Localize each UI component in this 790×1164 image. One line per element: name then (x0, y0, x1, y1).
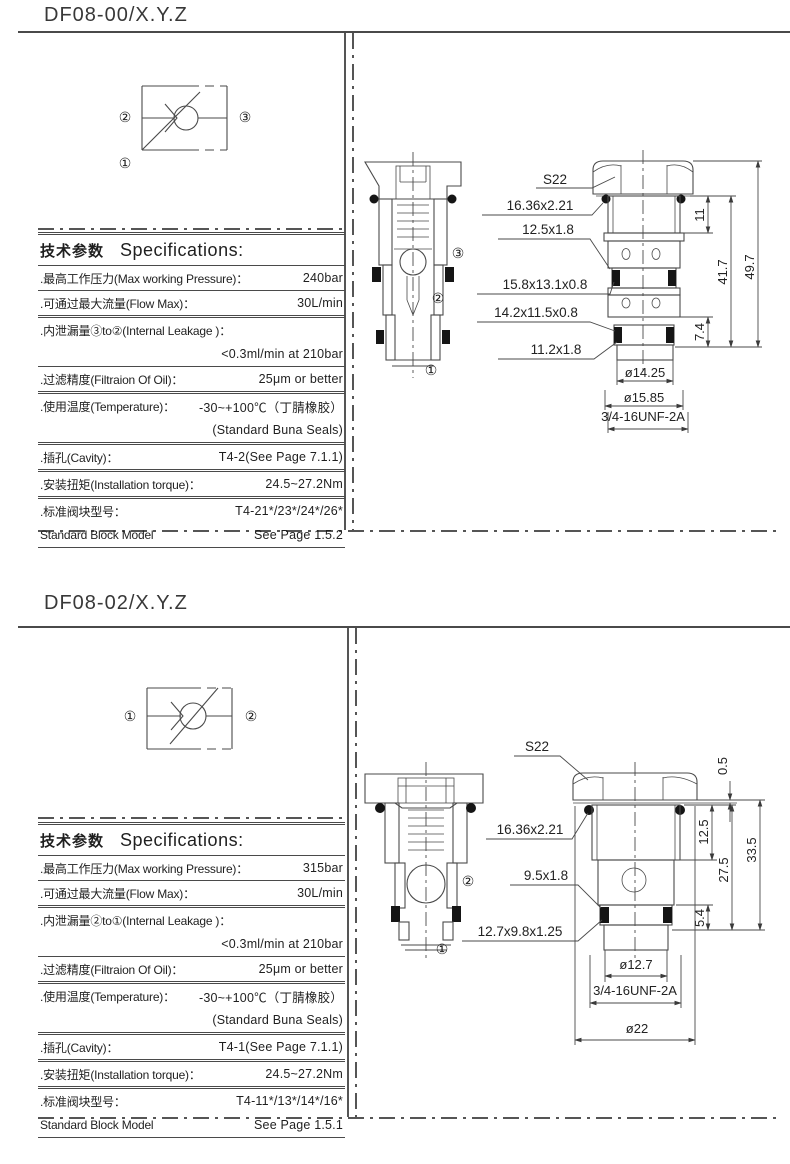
spec-label: .插孔(Cavity)： (40, 1039, 118, 1056)
callout-labels: S22 16.36x2.21 12.5x1.8 15.8x13.1x0.8 14… (477, 172, 617, 359)
page-title: DF08-00/X.Y.Z (44, 4, 188, 27)
spec-value: See Page 1.5.1 (254, 1118, 343, 1132)
spec-value: 240bar (303, 271, 343, 285)
datasheet-page: DF08-00/X.Y.Z ② ③ ① 技术参数 Specifications:… (0, 0, 790, 1164)
callout-12-7x9-8x1-25: 12.7x9.8x1.25 (478, 924, 563, 939)
spec-row: .标准阀块型号：T4-21*/23*/24*/26* Standard Bloc… (38, 496, 345, 547)
spec-label: .最高工作压力(Max working Pressure)： (40, 270, 248, 287)
spec-label: .插孔(Cavity)： (40, 449, 118, 466)
callout-s22: S22 (525, 739, 549, 754)
symbol-port-2-label: ② (119, 109, 132, 125)
spec-label: Standard Block Model (40, 528, 153, 542)
spec-label: Standard Block Model (40, 1118, 153, 1132)
spec-header-en: Specifications: (120, 240, 244, 261)
callout-s22: S22 (543, 172, 567, 187)
dim-7-4: 7.4 (692, 323, 707, 341)
spec-value: 30L/min (297, 886, 343, 900)
spec-row: .标准阀块型号：T4-11*/13*/14*/16* Standard Bloc… (38, 1086, 345, 1137)
valve-symbol-3port: ② ③ ① (105, 75, 270, 180)
cross-section-view: ③ ② ① (365, 152, 464, 378)
spec-value: <0.3ml/min at 210bar (221, 347, 343, 361)
frame-line-horizontal (38, 817, 348, 819)
port-2-label: ② (462, 873, 475, 889)
port-2-label: ② (432, 290, 445, 306)
spec-value: T4-11*/13*/14*/16* (236, 1094, 343, 1108)
spec-header: 技术参数 Specifications: (38, 825, 345, 855)
dim-dia-15-85: ø15.85 (624, 390, 664, 405)
callout-12-5x1-8: 12.5x1.8 (522, 222, 574, 237)
spec-value: -30~+100℃（丁腈橡胶） (199, 397, 343, 416)
frame-line-horizontal (38, 228, 345, 230)
spec-value: <0.3ml/min at 210bar (221, 937, 343, 951)
title-rule (18, 626, 790, 628)
spec-row: .可通过最大流量(Flow Max)：30L/min (38, 880, 345, 905)
frame-divider-vertical (347, 628, 349, 1117)
spec-label: .可通过最大流量(Flow Max)： (40, 295, 195, 312)
dim-dia-12-7: ø12.7 (619, 957, 652, 972)
spec-value: (Standard Buna Seals) (212, 423, 343, 437)
port-3-label: ③ (452, 245, 465, 261)
symbol-port-1-label: ① (124, 708, 137, 724)
dim-49-7: 49.7 (742, 254, 757, 279)
dim-5-4: 5.4 (692, 909, 707, 927)
spec-label: .标准阀块型号： (40, 503, 126, 520)
spec-value: -30~+100℃（丁腈橡胶） (199, 987, 343, 1006)
frame-divider-vertical-dashed (352, 33, 354, 530)
spec-row: .内泄漏量②to①(Internal Leakage )： <0.3ml/min… (38, 905, 345, 956)
spec-label: .过滤精度(Filtraion Of Oil)： (40, 371, 183, 388)
dim-dia-14-25: ø14.25 (625, 365, 665, 380)
symbol-port-1-label: ① (119, 155, 132, 171)
spec-row: .最高工作压力(Max working Pressure)：315bar (38, 855, 345, 880)
spec-row: .使用温度(Temperature)：-30~+100℃（丁腈橡胶） (Stan… (38, 391, 345, 442)
callout-9-5x1-8: 9.5x1.8 (524, 868, 568, 883)
spec-label: .使用温度(Temperature)： (40, 398, 175, 415)
spec-value: See Page 1.5.2 (254, 528, 343, 542)
spec-label: .内泄漏量②to①(Internal Leakage )： (40, 912, 231, 929)
title-rule (18, 31, 790, 33)
spec-label: .内泄漏量③to②(Internal Leakage )： (40, 322, 231, 339)
spec-value: 30L/min (297, 296, 343, 310)
callout-16-36x2-21: 16.36x2.21 (507, 198, 574, 213)
spec-label: .最高工作压力(Max working Pressure)： (40, 860, 248, 877)
symbol-port-2-label: ② (245, 708, 258, 724)
side-view (593, 150, 693, 372)
callout-14-2x11-5x0-8: 14.2x11.5x0.8 (494, 305, 578, 320)
spec-header-en: Specifications: (120, 830, 244, 851)
dim-thread: 3/4-16UNF-2A (601, 409, 685, 424)
callout-16-36x2-21: 16.36x2.21 (497, 822, 564, 837)
spec-row: .插孔(Cavity)：T4-2(See Page 7.1.1) (38, 442, 345, 469)
specifications-table: 技术参数 Specifications: .最高工作压力(Max working… (38, 822, 345, 1138)
spec-label: .使用温度(Temperature)： (40, 988, 175, 1005)
dim-27-5: 27.5 (716, 857, 731, 882)
page-title: DF08-02/X.Y.Z (44, 592, 188, 615)
spec-row: .插孔(Cavity)：T4-1(See Page 7.1.1) (38, 1032, 345, 1059)
spec-value: T4-21*/23*/24*/26* (235, 504, 343, 518)
dim-33-5: 33.5 (744, 837, 759, 862)
callout-labels: S22 16.36x2.21 9.5x1.8 12.7x9.8x1.25 (462, 739, 602, 941)
spec-row: .安装扭矩(Installation torque)：24.5~27.2Nm (38, 469, 345, 496)
cross-section-view: ② ① (365, 762, 483, 962)
spec-row: .最高工作压力(Max working Pressure)：240bar (38, 265, 345, 290)
dim-thread: 3/4-16UNF-2A (593, 983, 677, 998)
spec-header: 技术参数 Specifications: (38, 235, 345, 265)
spec-row: .内泄漏量③to②(Internal Leakage )： <0.3ml/min… (38, 315, 345, 366)
spec-row: .过滤精度(Filtraion Of Oil)：25μm or better (38, 366, 345, 391)
callout-11-2x1-8: 11.2x1.8 (531, 342, 582, 357)
callout-15-8x13-1x0-8: 15.8x13.1x0.8 (503, 277, 588, 292)
port-1-label: ① (436, 941, 449, 957)
dim-41-7: 41.7 (715, 259, 730, 284)
spec-label: .过滤精度(Filtraion Of Oil)： (40, 961, 183, 978)
spec-value: (Standard Buna Seals) (212, 1013, 343, 1027)
spec-value: 24.5~27.2Nm (265, 1067, 343, 1081)
spec-value: T4-1(See Page 7.1.1) (219, 1040, 343, 1054)
spec-header-cn: 技术参数 (40, 240, 104, 261)
spec-row: .安装扭矩(Installation torque)：24.5~27.2Nm (38, 1059, 345, 1086)
spec-value: 25μm or better (259, 962, 343, 976)
valve-symbol-2port: ① ② (110, 680, 270, 760)
spec-label: .安装扭矩(Installation torque)： (40, 1066, 201, 1083)
spec-label: .安装扭矩(Installation torque)： (40, 476, 201, 493)
spec-label: .标准阀块型号： (40, 1093, 126, 1110)
dim-dia-22: ø22 (626, 1021, 648, 1036)
spec-row: .过滤精度(Filtraion Of Oil)：25μm or better (38, 956, 345, 981)
port-1-label: ① (425, 362, 438, 378)
dim-0-5: 0.5 (715, 757, 730, 775)
symbol-port-3-label: ③ (239, 109, 252, 125)
dim-11: 11 (692, 208, 707, 222)
spec-value: T4-2(See Page 7.1.1) (219, 450, 343, 464)
spec-row: .可通过最大流量(Flow Max)：30L/min (38, 290, 345, 315)
valve-cross-section-and-dimensions: ③ ② ① (355, 140, 785, 445)
spec-value: 25μm or better (259, 372, 343, 386)
spec-label: .可通过最大流量(Flow Max)： (40, 885, 195, 902)
spec-value: 24.5~27.2Nm (265, 477, 343, 491)
valve-cross-section-and-dimensions: ② ① S22 16.36x2.21 9.5x1.8 (355, 735, 785, 1055)
dim-12-5: 12.5 (696, 819, 711, 844)
spec-value: 315bar (303, 861, 343, 875)
specifications-table: 技术参数 Specifications: .最高工作压力(Max working… (38, 232, 345, 548)
spec-header-cn: 技术参数 (40, 830, 104, 851)
spec-row: .使用温度(Temperature)：-30~+100℃（丁腈橡胶） (Stan… (38, 981, 345, 1032)
